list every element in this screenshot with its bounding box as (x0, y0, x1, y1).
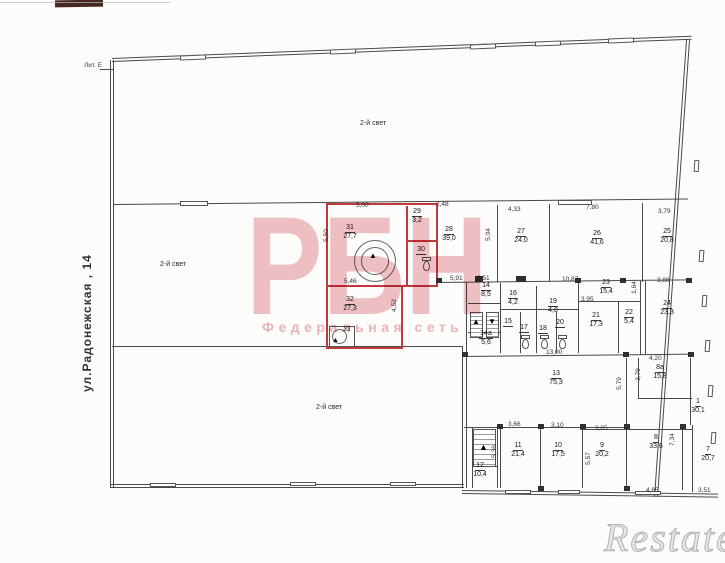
wall-pier (623, 352, 629, 357)
window-mark (390, 482, 416, 486)
wall-mid-5 (578, 281, 579, 353)
wall-27-left (497, 205, 498, 282)
wall-pier (688, 352, 694, 357)
wall-pier (624, 486, 630, 491)
wall-left (110, 60, 114, 488)
dim-label: 3,95 (581, 296, 594, 303)
window-mark (505, 490, 531, 494)
window-mark (558, 490, 580, 494)
dim-label: 13,00 (546, 349, 562, 356)
window-mark (711, 432, 717, 444)
room-label-20: 20 (552, 319, 568, 328)
room-label-27: 2724,0 (506, 228, 536, 246)
wall-mid-2 (536, 286, 537, 353)
dim-label: 3,65 (595, 425, 608, 432)
room-label-18: 18 (535, 325, 551, 334)
window-mark (699, 250, 705, 262)
wall-pier (516, 276, 526, 282)
window-mark (535, 41, 561, 47)
dim-label: 4,33 (508, 206, 521, 213)
room-label-8: 833,6 (642, 434, 670, 452)
wall-pier (624, 424, 630, 429)
wall-pier (686, 278, 692, 283)
wall-pier (620, 278, 626, 283)
floor-plan-sheet: ул.Радонежская , 14 Лит. Е (0, 0, 725, 563)
dim-label: 3,88 (657, 277, 670, 284)
wall-mid-6 (640, 281, 641, 355)
room-label-17: 17 (516, 324, 532, 333)
room-label-13: 1375,3 (542, 370, 570, 388)
dim-label: 5,36 (491, 445, 498, 458)
toilet-icon (541, 339, 548, 349)
dim-label: 3,66 (508, 421, 521, 428)
room-label-21: 2117,3 (582, 312, 610, 330)
wall-11-left (500, 428, 501, 488)
wall-26-left (549, 204, 550, 282)
dim-label: 4,65 (646, 487, 659, 494)
room-label-12: 1210,4 (468, 462, 492, 480)
window-mark (702, 295, 708, 307)
window-mark (180, 201, 208, 206)
room-label-9: 920,2 (588, 442, 616, 460)
liter-label: Лит. Е (84, 62, 102, 69)
wall-pier (680, 424, 686, 429)
room-label-16: 164,2 (502, 290, 524, 308)
hall-label: 2-й свет (316, 404, 342, 411)
dim-label: 5,57 (585, 452, 592, 465)
window-mark (150, 483, 176, 487)
room-label-19: 194,8 (542, 298, 564, 316)
street-address-label: ул.Радонежская , 14 (80, 254, 94, 392)
window-mark (330, 49, 356, 55)
room-label-7: 720,7 (694, 446, 722, 464)
hall-label: 2-й свет (360, 120, 386, 127)
wall-25-left (642, 203, 643, 282)
wall-pier (462, 352, 468, 357)
wall-hallC-right (462, 346, 463, 488)
toilet-icon (522, 339, 529, 349)
wall-pier (497, 424, 503, 429)
dim-label: 3,10 (551, 422, 564, 429)
dim-label: 7,80 (586, 204, 599, 211)
hall-label: 2-й свет (160, 261, 186, 268)
room-label-8a: 8а15,8 (646, 364, 674, 382)
window-mark (705, 340, 711, 352)
toilet-icon (559, 339, 566, 349)
room-label-25: 2520,8 (652, 228, 682, 246)
wall-10-left (540, 428, 541, 488)
room-label-26: 2641,6 (582, 230, 612, 248)
wall-9-left (582, 429, 583, 488)
dim-label: 3,51 (698, 487, 711, 494)
dim-label: 4,20 (649, 355, 662, 362)
watermark-subtitle: Федеральная сеть (262, 319, 463, 335)
scan-streak (0, 2, 170, 3)
room-label-10: 1017,5 (544, 442, 572, 460)
window-mark (708, 385, 714, 397)
room-label-22: 225,4 (618, 309, 640, 327)
dim-label: 10,87 (562, 276, 578, 283)
watermark-corner-brand: Restate (604, 514, 725, 561)
wall-8a-bottom (638, 398, 692, 399)
wall-7-left (692, 425, 693, 492)
stair-arrow-down-icon: ▼ (488, 318, 496, 326)
room-label-23: 2315,4 (592, 279, 620, 297)
window-mark (180, 55, 206, 61)
room-label-24: 2423,3 (652, 300, 682, 318)
wall-pier (538, 424, 544, 429)
dim-label: 5,79 (616, 377, 623, 390)
wall-hallB-bottom (112, 346, 462, 347)
room-label-15: 15 (500, 318, 516, 327)
wall-pier (538, 486, 544, 491)
window-mark (694, 160, 700, 172)
dim-label: 3,79 (635, 368, 642, 381)
wall-corridor (500, 309, 578, 310)
stair-arrow-up-icon: ▲ (479, 443, 488, 452)
wall-pier (580, 424, 586, 429)
dim-label: 1,64 (631, 281, 638, 294)
window-mark (290, 482, 316, 486)
dim-label: 3,79 (658, 208, 671, 215)
window-mark (470, 44, 496, 50)
wall-mid-7 (645, 281, 646, 355)
window-mark (608, 38, 634, 44)
watermark-brand: РБН (246, 196, 488, 336)
wall-bottom-right (462, 490, 718, 498)
wall-8-right (682, 429, 683, 490)
room-label-11: 1121,4 (504, 442, 532, 460)
room-label-1: 130,1 (686, 398, 710, 416)
dim-label: 7,34 (669, 433, 676, 446)
